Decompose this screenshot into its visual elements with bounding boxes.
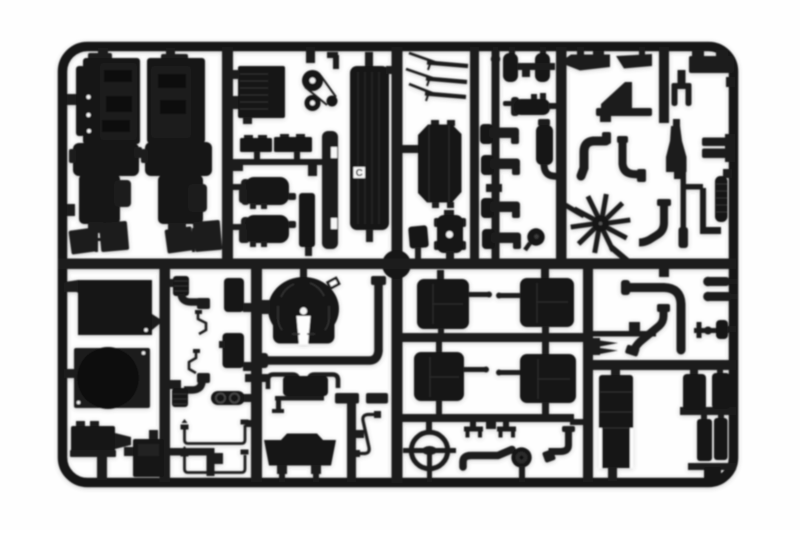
svg-text:C: C bbox=[356, 168, 363, 179]
